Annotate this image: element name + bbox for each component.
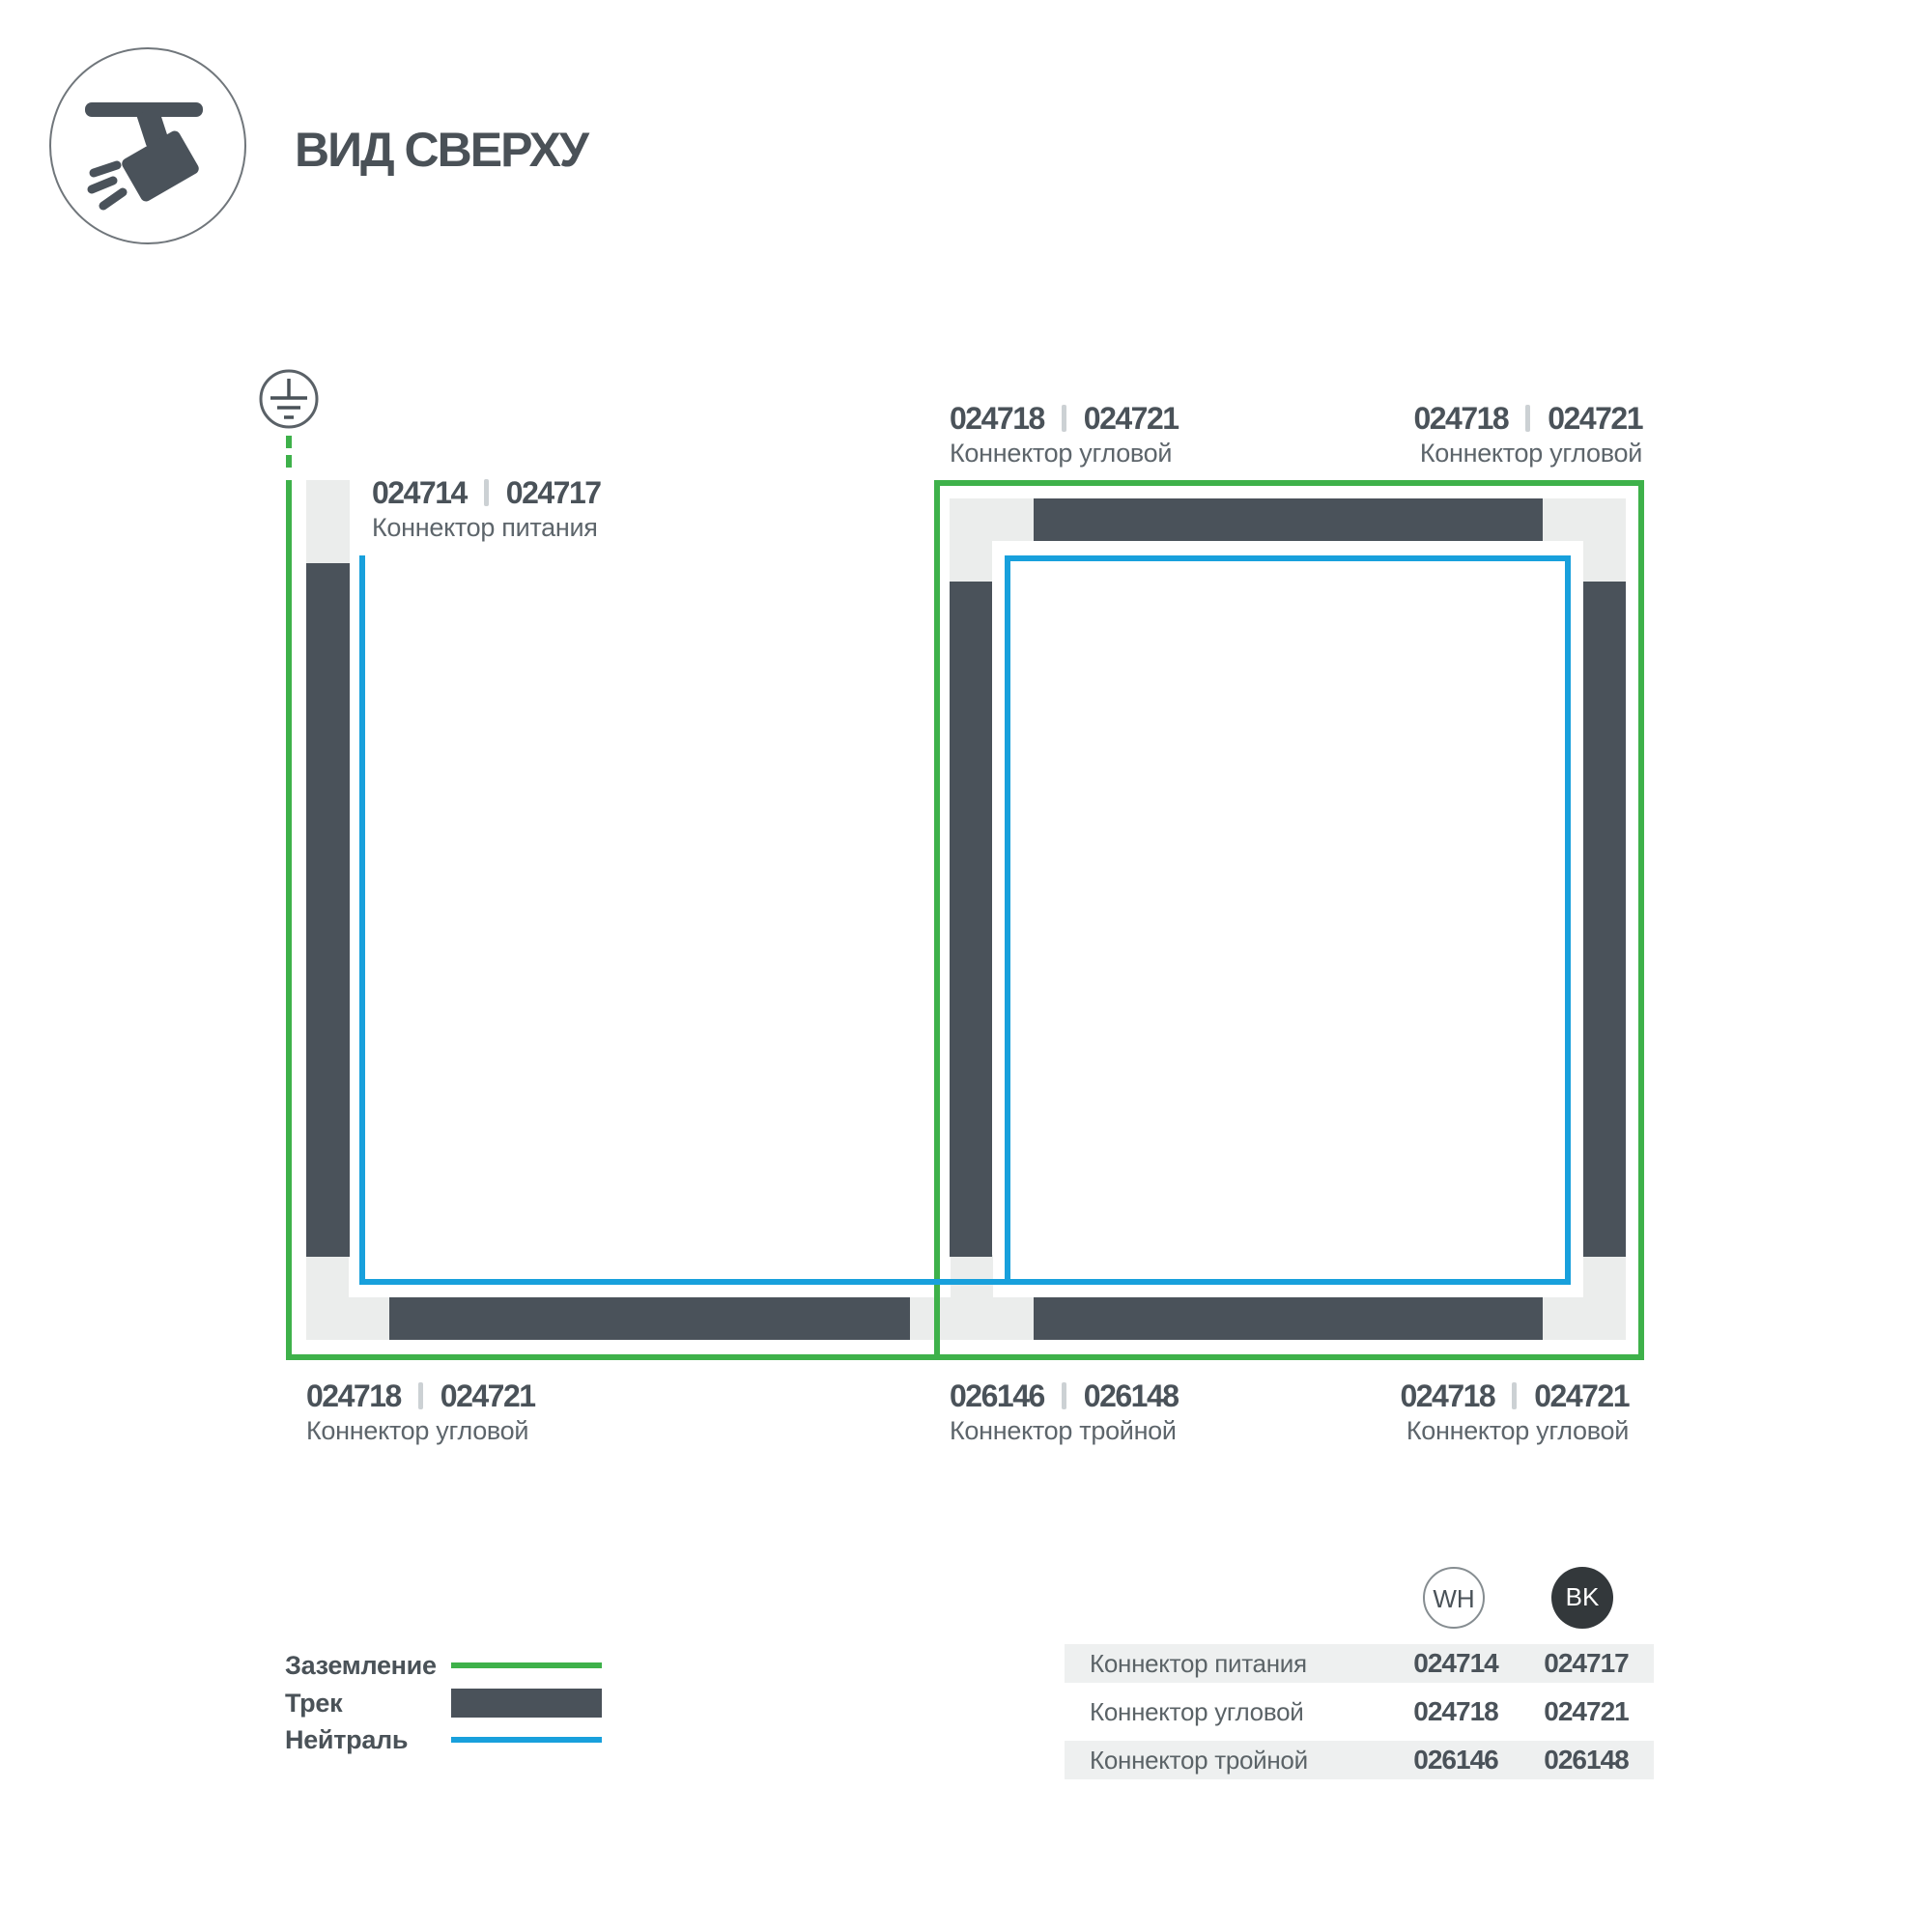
callout-caption: Коннектор питания — [372, 514, 601, 542]
callout-corner-connector-bottom-left: 024718 024721 Коннектор угловой — [306, 1379, 535, 1445]
callout-power-connector: 024714 024717 Коннектор питания — [372, 476, 601, 542]
part-codes: 024718 024721 — [950, 402, 1179, 435]
code-bk: 024717 — [506, 476, 601, 509]
ground-line-vertical — [286, 480, 292, 1354]
code-separator — [1062, 1382, 1066, 1409]
code-bk: 024721 — [1084, 402, 1179, 435]
neutral-line-vertical — [359, 555, 365, 1285]
row-code-wh: 026146 — [1394, 1741, 1518, 1779]
row-code-bk: 024717 — [1524, 1644, 1648, 1683]
row-code-wh: 024714 — [1394, 1644, 1518, 1683]
color-badge-white: WH — [1423, 1567, 1485, 1629]
table-row: Коннектор угловой 024718 024721 — [1065, 1692, 1654, 1731]
row-code-bk: 024721 — [1524, 1692, 1648, 1731]
callout-caption: Коннектор угловой — [1400, 1417, 1629, 1445]
neutral-line-swatch — [451, 1737, 602, 1743]
legend-item-track: Трек — [285, 1689, 613, 1718]
power-connector-piece — [306, 480, 350, 563]
corner-connector-piece — [306, 1297, 389, 1340]
code-wh: 026146 — [950, 1379, 1044, 1412]
code-wh: 024714 — [372, 476, 467, 509]
part-codes: 024714 024717 — [372, 476, 601, 509]
row-code-wh: 024718 — [1394, 1692, 1518, 1731]
callout-corner-connector-top-right: 024718 024721 Коннектор угловой — [1413, 402, 1642, 468]
code-separator — [1062, 405, 1066, 432]
color-badge-black: BK — [1551, 1567, 1613, 1629]
earth-ground-icon — [258, 368, 320, 430]
code-separator — [1525, 405, 1530, 432]
part-codes: 024718 024721 — [1400, 1379, 1629, 1412]
callout-caption: Коннектор тройной — [950, 1417, 1179, 1445]
part-codes: 024718 024721 — [306, 1379, 535, 1412]
corner-connector-piece — [306, 1257, 349, 1299]
code-wh: 024718 — [950, 402, 1044, 435]
code-wh: 024718 — [306, 1379, 401, 1412]
callout-caption: Коннектор угловой — [1413, 440, 1642, 468]
callout-triple-connector: 026146 026148 Коннектор тройной — [950, 1379, 1179, 1445]
code-separator — [418, 1382, 423, 1409]
ground-line-dash — [286, 455, 292, 468]
neutral-line-horizontal — [359, 1279, 1010, 1285]
part-codes: 026146 026148 — [950, 1379, 1179, 1412]
page-title: ВИД СВЕРХУ — [295, 126, 587, 174]
legend-item-neutral: Нейтраль — [285, 1725, 613, 1754]
callout-corner-connector-bottom-right: 024718 024721 Коннектор угловой — [1400, 1379, 1629, 1445]
code-bk: 024721 — [1534, 1379, 1629, 1412]
legend-item-ground: Заземление — [285, 1651, 613, 1680]
callout-corner-connector-top-left: 024718 024721 Коннектор угловой — [950, 402, 1179, 468]
neutral-line-loop — [1005, 555, 1571, 1285]
callout-caption: Коннектор угловой — [950, 440, 1179, 468]
part-codes: 024718 024721 — [1413, 402, 1642, 435]
page: ВИД СВЕРХУ 024 — [0, 0, 1932, 1932]
code-bk: 026148 — [1084, 1379, 1179, 1412]
code-wh: 024718 — [1400, 1379, 1494, 1412]
code-wh: 024718 — [1413, 402, 1508, 435]
track-segment — [306, 563, 350, 1257]
track-spotlight-icon — [48, 46, 247, 245]
code-bk: 024721 — [1548, 402, 1642, 435]
legend-label: Трек — [285, 1689, 342, 1718]
code-separator — [1512, 1382, 1517, 1409]
row-name: Коннектор угловой — [1090, 1692, 1303, 1731]
table-row: Коннектор тройной 026146 026148 — [1065, 1741, 1654, 1779]
code-bk: 024721 — [440, 1379, 535, 1412]
ground-line-dash — [286, 436, 292, 448]
ground-line-swatch — [451, 1662, 602, 1668]
row-code-bk: 026148 — [1524, 1741, 1648, 1779]
callout-caption: Коннектор угловой — [306, 1417, 535, 1445]
code-separator — [484, 479, 489, 506]
legend-label: Нейтраль — [285, 1725, 408, 1754]
row-name: Коннектор тройной — [1090, 1741, 1308, 1779]
table-row: Коннектор питания 024714 024717 — [1065, 1644, 1654, 1683]
track-segment — [389, 1297, 910, 1340]
legend-label: Заземление — [285, 1651, 437, 1680]
row-name: Коннектор питания — [1090, 1644, 1307, 1683]
track-swatch — [451, 1689, 602, 1718]
